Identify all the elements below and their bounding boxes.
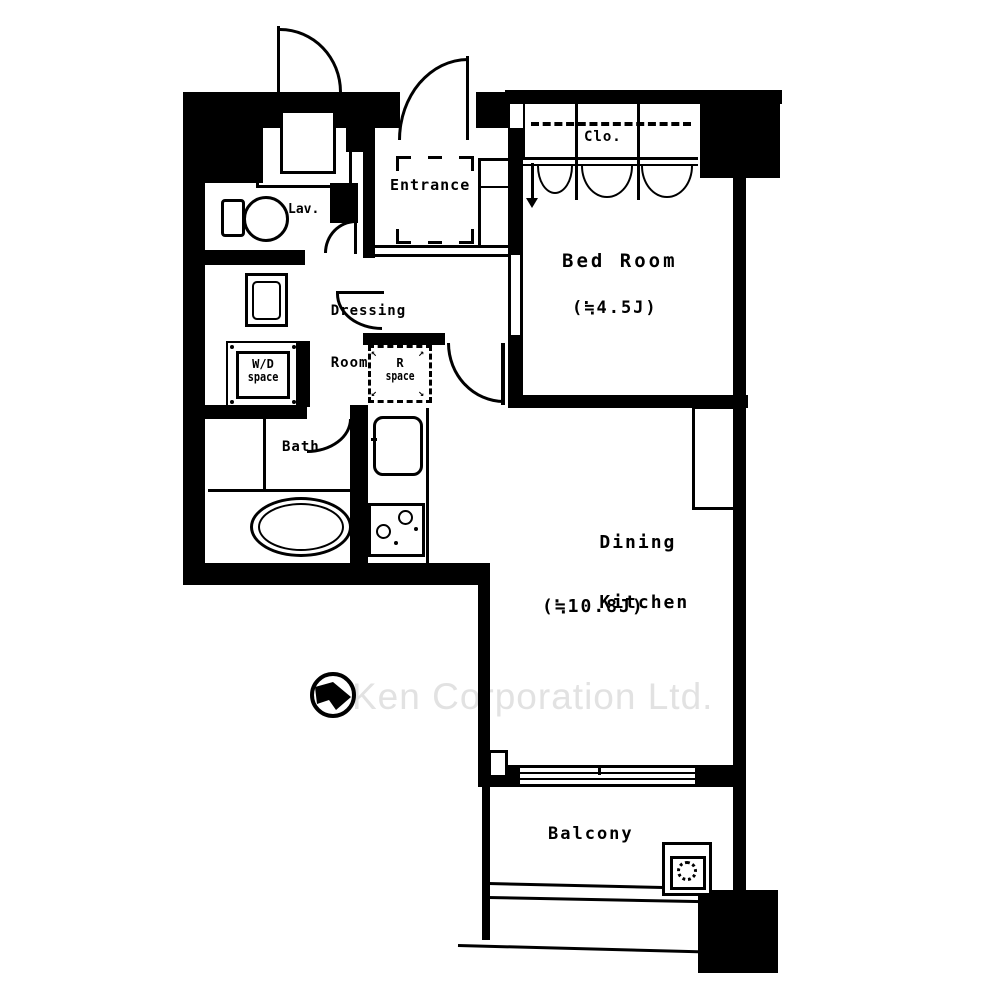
vanity-basin [252,281,281,320]
entrance-door-swing [398,58,468,140]
stove-burner [398,510,413,525]
balcony-window-center-tick [598,765,601,775]
dining-kitchen-size: (≒10.8J) [542,598,645,616]
balcony-parapet-line [488,896,702,903]
north-compass-icon [308,670,358,720]
entrance-door-leaf [466,56,469,140]
meter-box-equipment [280,110,336,174]
closet-door-swing-arrow [531,163,534,199]
wall-entrance-left [363,128,375,258]
genkan-dash [428,241,442,244]
bathtub-inner [258,503,344,551]
floor-plan: Ken Corporation Ltd. [0,0,1000,1000]
wall-lav-right [330,183,358,223]
wall-bedroom-left-upper [508,128,523,258]
genkan-corner-mark [396,156,411,171]
bath-label: Bath [282,440,320,454]
genkan-dash [428,156,442,159]
wall-top-band-left [183,92,363,128]
bath-partition [263,419,266,491]
wall-bottom-right-block [698,890,778,973]
balcony-window-glass [520,784,695,787]
closet-folding-door [537,166,573,194]
balcony-label: Balcony [548,826,634,843]
dk-door-swing [447,343,504,403]
balcony-outer-edge-line [458,944,708,954]
lav-door-swing [324,220,356,253]
dk-right-counter [692,406,736,510]
wall-entrance-band-left [363,92,400,128]
wall-bedroom-bottom [508,395,748,408]
wall-window-band-right [695,765,735,787]
closet-door-swing-arrowhead [526,198,538,208]
wall-bath-top [183,405,307,419]
closet-track [523,157,698,166]
wall-west-bottom [183,563,490,585]
wall-step-notch [488,750,508,778]
stove-knob [394,541,398,545]
stove-burner [376,524,391,539]
watermark: Ken Corporation Ltd. [352,676,713,718]
closet-label: Clo. [584,130,622,144]
wall-meter-jamb [346,92,363,152]
closet-divider [575,104,578,200]
wall-top-right-block [700,90,780,178]
bed-room-label: Bed Room [562,252,678,271]
toilet-bowl [243,196,289,242]
wall-balcony-left [482,787,490,940]
r-corner-arrow: ↙ [371,388,377,399]
closet-hanger-pipe [531,122,691,126]
shoe-cabinet-shelf [480,186,516,188]
entrance-label: Entrance [390,178,470,193]
dining-kitchen-label: Dining Kitchen [548,498,689,648]
balcony-window-glass [520,772,695,774]
genkan-corner-mark [459,229,474,244]
kitchen-sink [373,416,423,476]
bed-room-size: (≒4.5J) [572,300,658,317]
lav-door-leaf [354,218,357,254]
kitchen-counter-edge [426,408,429,565]
lav-label: Lav. [288,203,319,216]
closet-folding-door [641,166,693,198]
sink-tap [371,438,377,441]
wall-bath-kitchen-divider [350,405,368,565]
balcony-drain-circle [677,861,697,881]
dk-door-leaf [501,343,505,405]
genkan-corner-mark [396,229,411,244]
meter-door-swing [280,28,342,92]
meter-door-leaf [277,26,280,92]
balcony-window-glass [520,778,695,780]
wall-lav-bottom [205,250,305,265]
balcony-window-glass [520,765,695,768]
wd-corner-dot [230,400,234,404]
toilet-tank [221,199,245,237]
wd-corner-dot [230,345,234,349]
closet-divider [637,104,640,200]
bedroom-sliding-door [508,255,523,335]
r-corner-arrow: ↘ [418,388,424,399]
r-space-label: R space [375,357,425,383]
closet-folding-door [581,166,633,198]
stove-knob [414,527,418,531]
wd-space-label: W/D space [238,358,288,384]
bath-floor-divider [208,489,358,492]
genkan-corner-mark [459,156,474,171]
